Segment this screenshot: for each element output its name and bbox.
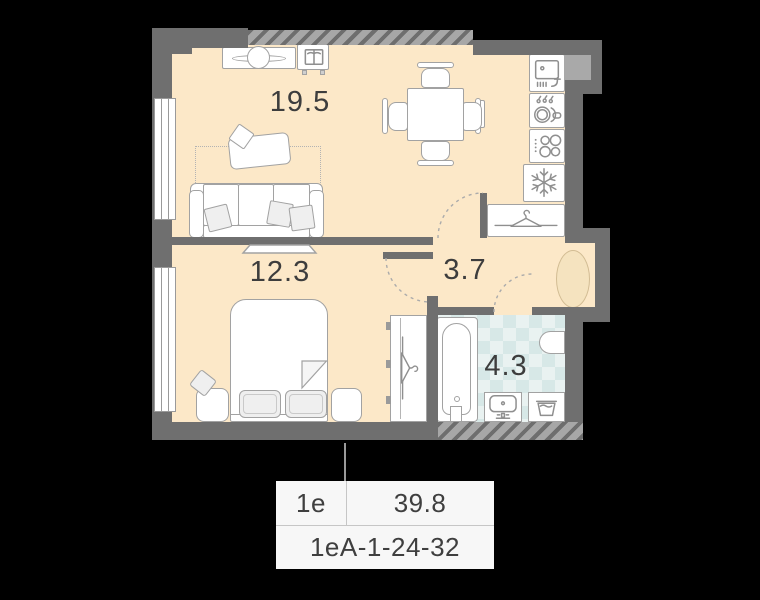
- room-label-hallway: 3.7: [428, 254, 502, 287]
- unit-type-label: 1е: [276, 481, 346, 525]
- wall-bedroom-niche: [383, 252, 433, 259]
- dining-chair: [421, 68, 450, 88]
- room-label-bedroom: 12.3: [228, 256, 332, 289]
- wardrobe-hinge: [386, 360, 391, 368]
- wall-bottom: [152, 422, 438, 440]
- wardrobe-hinge: [386, 396, 391, 404]
- hanger-icon: [491, 206, 561, 236]
- wall-hall-bottom: [565, 307, 610, 322]
- bed-pillow: [285, 390, 327, 418]
- basket-icon: [529, 393, 564, 421]
- dishwasher-icon: [530, 94, 564, 126]
- bathtub-drain: [454, 396, 460, 402]
- hanger-icon: [392, 333, 422, 403]
- callout-connector-line: [344, 443, 346, 483]
- bookshelf-leg: [302, 70, 307, 75]
- wall-bedroom-bathroom: [427, 296, 438, 422]
- hallway-rug: [556, 250, 590, 308]
- cooktop-icon: [530, 130, 564, 162]
- book-icon: [298, 45, 330, 70]
- dining-table: [407, 88, 464, 141]
- bathroom-sink: [484, 392, 522, 422]
- bed-pillow: [239, 390, 281, 418]
- wall-bath-right: [565, 322, 583, 422]
- wall-bathroom-top-left: [438, 307, 494, 315]
- decor-mirror: [247, 46, 270, 69]
- hall-wardrobe: [487, 204, 565, 237]
- wall-bottom-hatched: [438, 422, 583, 440]
- sofa-pillow: [288, 204, 315, 231]
- bookshelf: [297, 44, 329, 70]
- floor-plan: 19.5 12.3 3.7 4.3 1е 39.8 1еА-1-24-32: [0, 0, 760, 600]
- sink-icon: [530, 55, 564, 90]
- bathtub-faucet: [450, 406, 462, 422]
- snowflake-icon: [524, 165, 564, 200]
- wall-living-bedroom: [170, 237, 433, 245]
- wardrobe-hinge: [386, 322, 391, 330]
- sofa-armrest: [189, 190, 204, 238]
- laundry-basket: [528, 392, 565, 422]
- bookshelf-leg: [320, 70, 325, 75]
- window: [154, 98, 176, 220]
- wall-hall-top: [565, 228, 610, 243]
- utility-shaft: [564, 55, 591, 80]
- sink-basin-icon: [485, 393, 521, 421]
- dining-chair: [462, 102, 482, 131]
- wall-wardrobe-side: [480, 193, 487, 238]
- dining-chair: [388, 102, 408, 131]
- console-table: [222, 47, 296, 69]
- wall-bathroom-top-right: [532, 307, 565, 315]
- wall-corner-top-left: [152, 28, 192, 54]
- unit-area-label: 39.8: [346, 481, 494, 525]
- nightstand: [331, 388, 362, 422]
- fridge: [523, 164, 565, 202]
- room-label-bathroom: 4.3: [468, 350, 544, 383]
- kitchen-sink: [529, 54, 565, 92]
- window: [154, 267, 176, 412]
- pillow-piping: [243, 394, 277, 414]
- wall-top-hatched: [248, 30, 473, 45]
- dining-chair: [421, 141, 450, 161]
- bedroom-wardrobe: [390, 315, 427, 422]
- wall-right-kitchen: [565, 80, 583, 240]
- cooktop: [529, 129, 565, 163]
- pillow-piping: [289, 394, 323, 414]
- room-label-living: 19.5: [258, 86, 342, 119]
- dishwasher: [529, 93, 565, 128]
- unit-code-label: 1еА-1-24-32: [276, 525, 494, 569]
